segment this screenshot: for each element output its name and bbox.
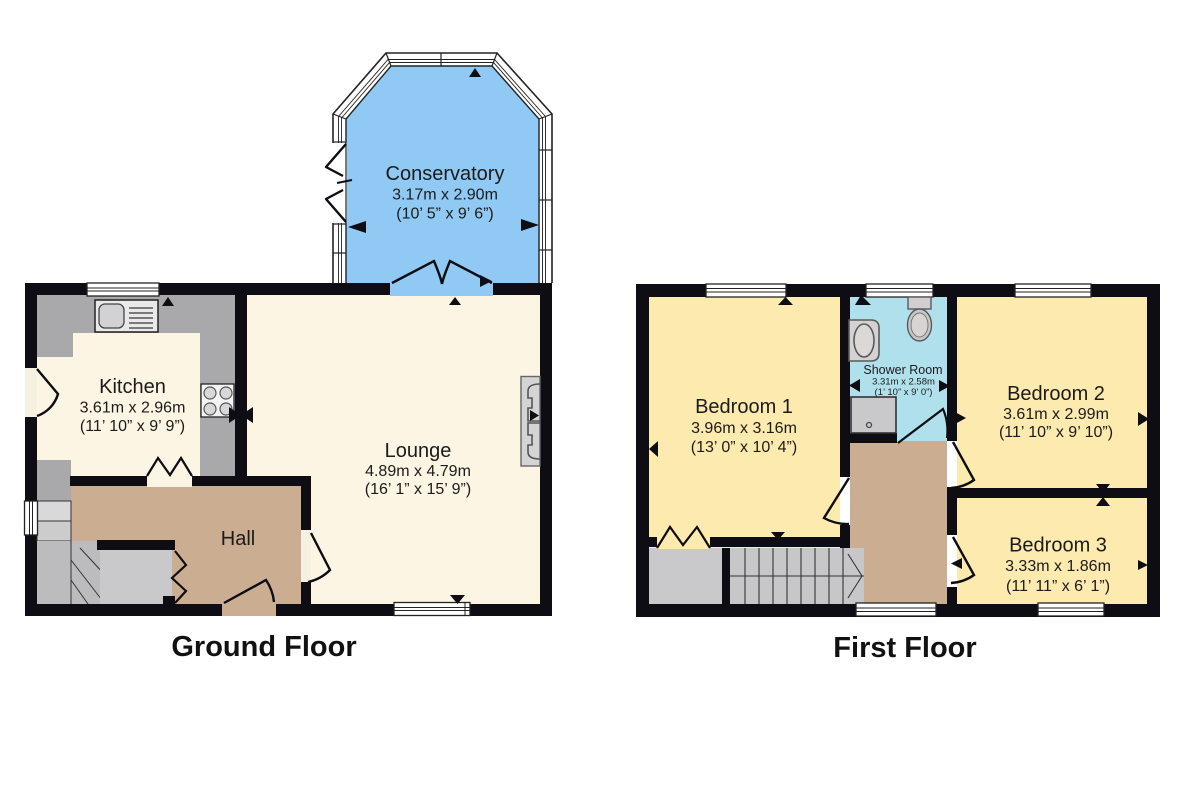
- svg-text:(16’ 1” x 15’ 9”): (16’ 1” x 15’ 9”): [365, 481, 471, 498]
- svg-text:Bedroom 2: Bedroom 2: [1007, 383, 1105, 405]
- svg-text:3.31m x 2.58m: 3.31m x 2.58m: [872, 377, 935, 388]
- svg-text:Conservatory: Conservatory: [386, 163, 505, 185]
- svg-text:(11’ 10” x 9’ 9”): (11’ 10” x 9’ 9”): [80, 418, 185, 435]
- svg-text:4.89m x 4.79m: 4.89m x 4.79m: [365, 463, 471, 480]
- svg-text:(13’ 0” x 10’ 4”): (13’ 0” x 10’ 4”): [691, 439, 797, 456]
- svg-text:3.96m x 3.16m: 3.96m x 3.16m: [691, 420, 797, 437]
- svg-text:(1’ 10” x 9’ 0”): (1’ 10” x 9’ 0”): [875, 387, 933, 398]
- svg-text:3.17m x 2.90m: 3.17m x 2.90m: [392, 187, 498, 204]
- svg-text:(11’ 11” x 6’ 1”): (11’ 11” x 6’ 1”): [1006, 578, 1110, 595]
- svg-text:First Floor: First Floor: [833, 632, 976, 664]
- svg-text:Ground Floor: Ground Floor: [171, 631, 356, 663]
- svg-text:Kitchen: Kitchen: [99, 376, 166, 398]
- svg-text:3.61m x 2.96m: 3.61m x 2.96m: [80, 400, 186, 417]
- svg-text:(10’ 5” x 9’ 6”): (10’ 5” x 9’ 6”): [396, 206, 494, 223]
- svg-text:Bedroom 3: Bedroom 3: [1009, 535, 1107, 557]
- svg-text:3.33m x 1.86m: 3.33m x 1.86m: [1005, 558, 1111, 575]
- svg-text:(11’ 10” x 9’ 10”): (11’ 10” x 9’ 10”): [999, 424, 1113, 441]
- svg-text:Hall: Hall: [221, 528, 255, 550]
- svg-text:3.61m x 2.99m: 3.61m x 2.99m: [1003, 406, 1109, 423]
- svg-text:Shower Room: Shower Room: [863, 363, 942, 377]
- svg-text:Bedroom 1: Bedroom 1: [695, 396, 793, 418]
- svg-text:Lounge: Lounge: [385, 440, 452, 462]
